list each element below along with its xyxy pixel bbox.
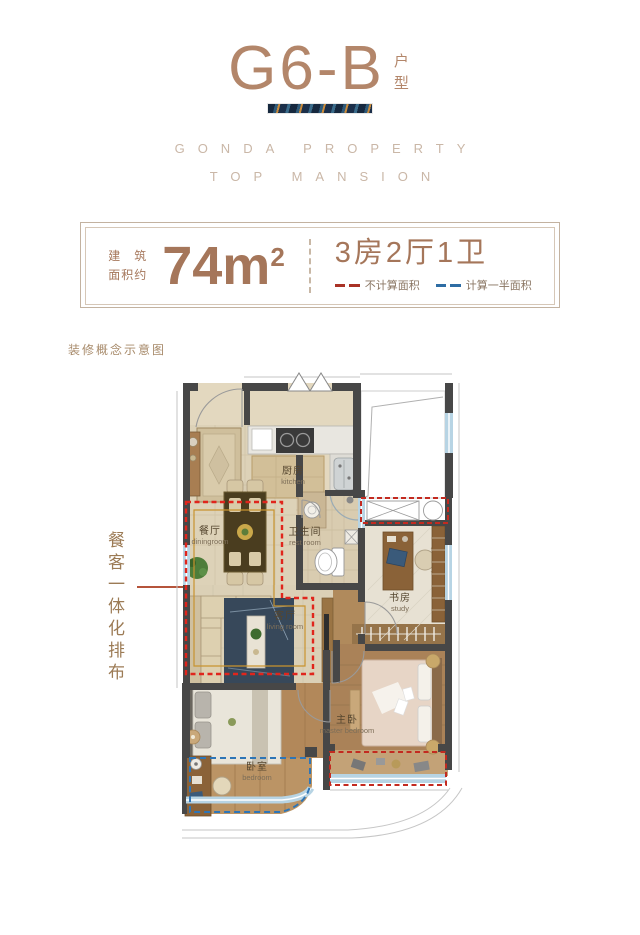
room-label-living: 客厅 living room: [267, 611, 303, 631]
dining-table-set: [224, 480, 266, 585]
room-label-bedroom: 卧室 bedroom: [242, 762, 272, 782]
master-bed: [350, 654, 442, 754]
floorplan-drawing: [0, 0, 640, 935]
room-label-master: 主卧 master bedroom: [320, 715, 375, 735]
room-label-dining: 餐厅 diningroom: [191, 526, 228, 546]
void-area: [361, 391, 445, 498]
bedroom-bed: [183, 686, 281, 764]
floorplan-page: G6-B 户型 GONDA PROPERTY TOP MANSION 建 筑 面…: [0, 0, 640, 935]
equipment-platform: [361, 498, 448, 523]
room-label-kitchen: 厨房 kitchen: [281, 466, 305, 486]
room-label-bath: 卫生间 rest room: [289, 527, 322, 547]
room-label-study: 书房 study: [389, 593, 411, 613]
